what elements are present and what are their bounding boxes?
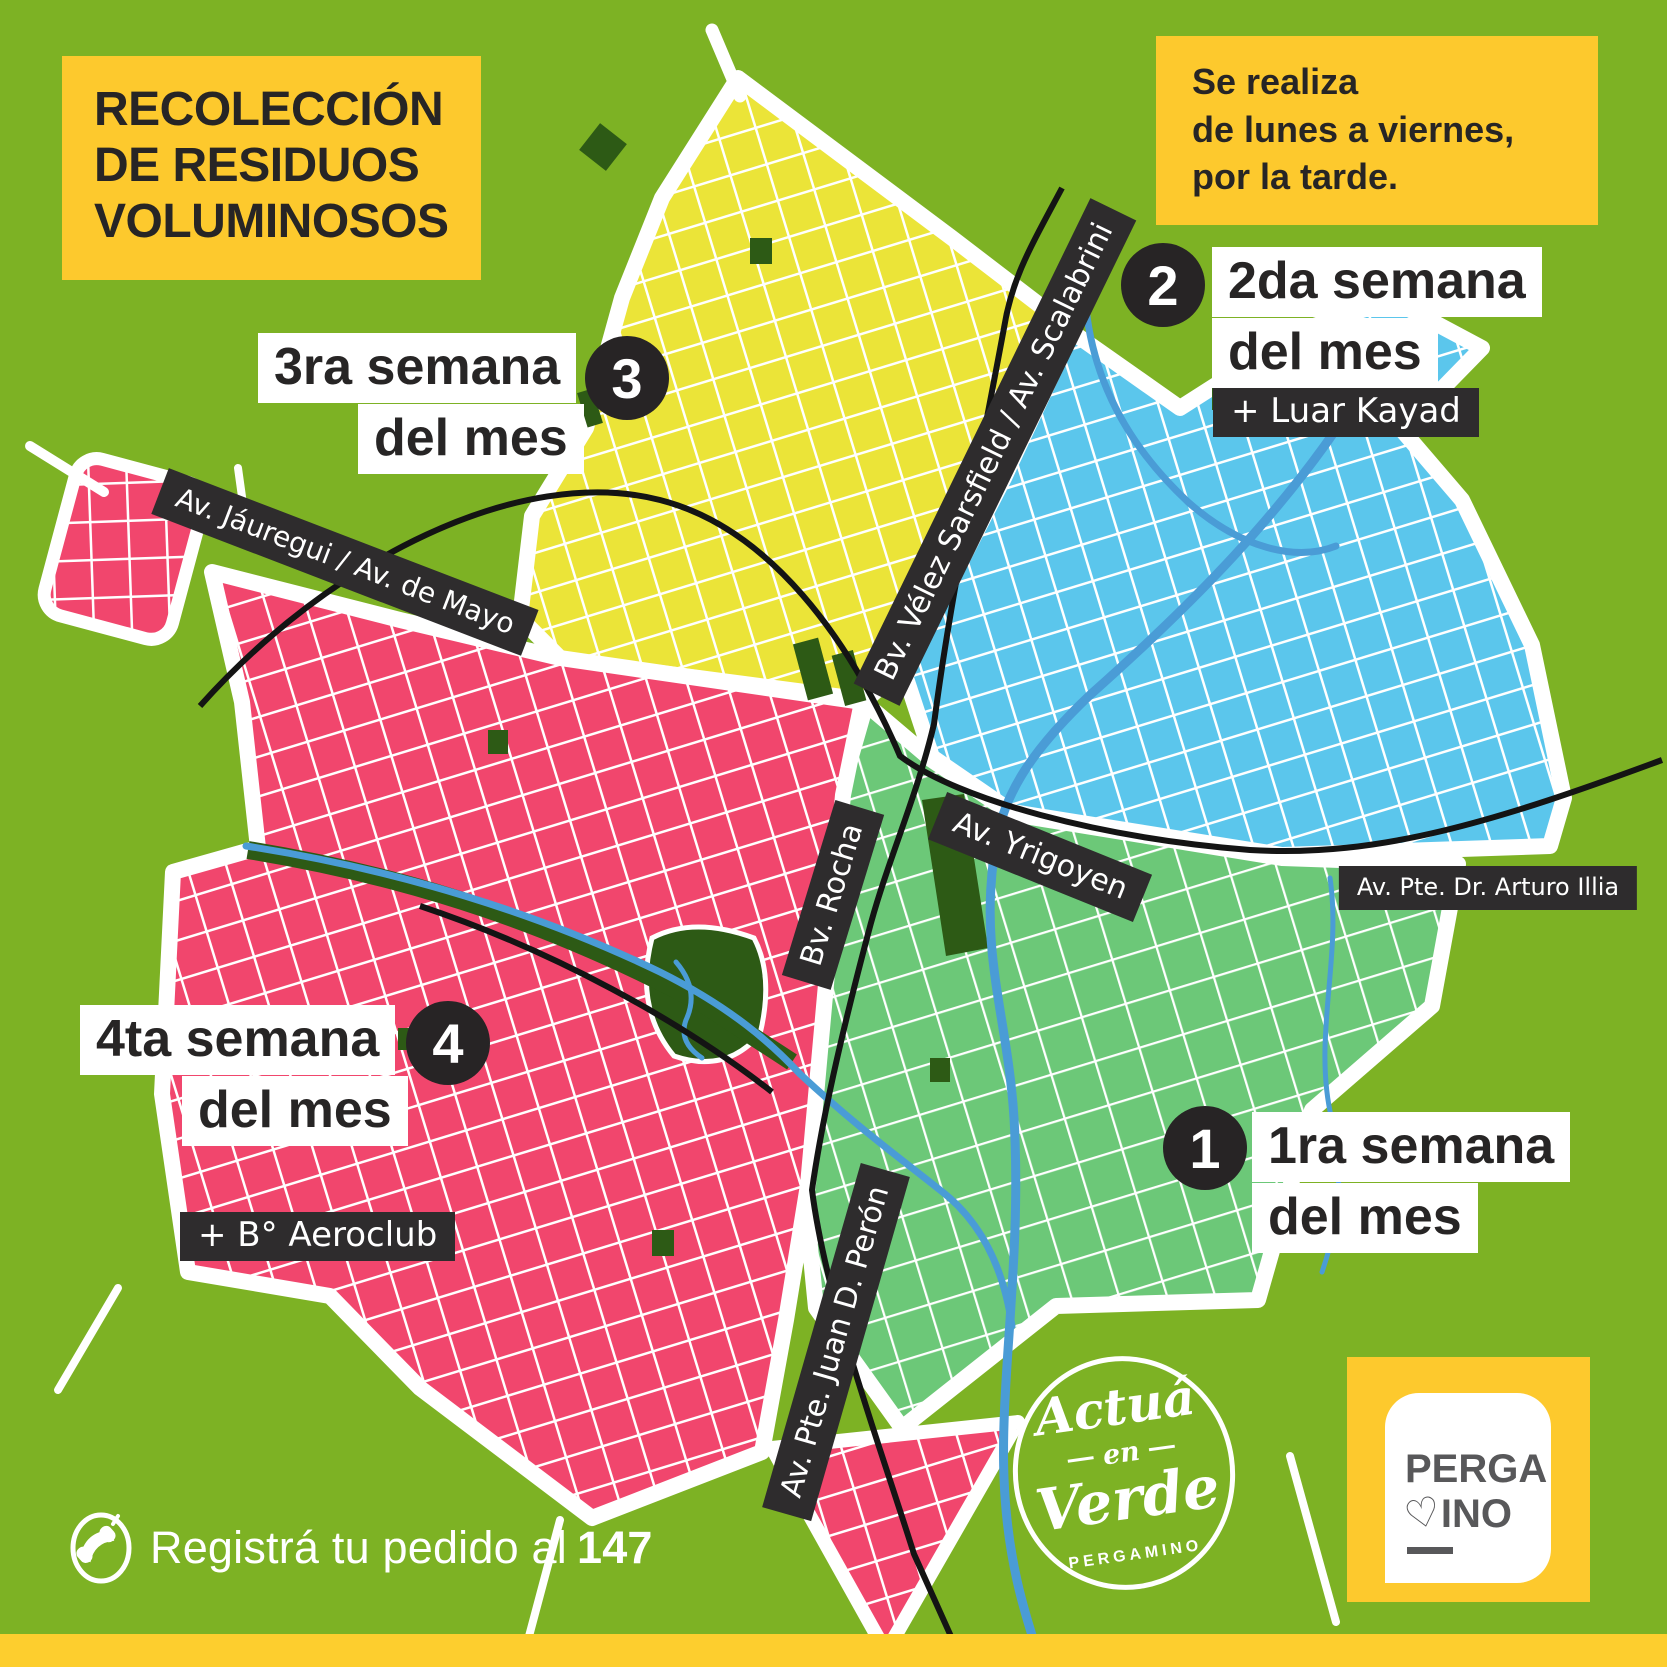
pergamino-logo: PERGA ♡ INO <box>1347 1357 1590 1602</box>
zone1-label-line2: del mes <box>1252 1183 1478 1253</box>
page-title: RECOLECCIÓN DE RESIDUOS VOLUMINOSOS <box>62 56 481 280</box>
heart-icon: ♡ <box>1400 1488 1446 1540</box>
title-line: RECOLECCIÓN <box>94 82 449 138</box>
speech-bubble-icon: PERGA ♡ INO <box>1385 1393 1551 1583</box>
stamp-word-verde: Verde <box>1031 1452 1223 1545</box>
stamp-dash-left <box>1067 1456 1093 1463</box>
zone4-label-line2: del mes <box>182 1076 408 1146</box>
zone4-label-line1: 4ta semana <box>80 1005 395 1075</box>
street-label-illia: Av. Pte. Dr. Arturo Illia <box>1339 866 1637 910</box>
logo-text: PERGA ♡ INO <box>1405 1447 1547 1554</box>
cta-prefix: Registrá tu pedido al <box>150 1522 567 1573</box>
logo-underline <box>1407 1547 1453 1554</box>
zone3-label-line2: del mes <box>358 404 584 474</box>
logo-line2: ♡ INO <box>1405 1492 1547 1537</box>
title-line: VOLUMINOSOS <box>94 194 449 250</box>
stamp-dash-right <box>1149 1445 1175 1452</box>
cta-text: Registrá tu pedido al147 <box>150 1522 653 1574</box>
bottom-accent-strip <box>0 1634 1667 1667</box>
schedule-line: de lunes a viernes, <box>1192 106 1562 154</box>
zone1-label-line1: 1ra semana <box>1252 1112 1570 1182</box>
logo-line2-rest: INO <box>1441 1492 1512 1537</box>
zone4-extra-label: + B° Aeroclub <box>180 1212 455 1261</box>
schedule-line: por la tarde. <box>1192 153 1562 201</box>
zone4-badge: 4 <box>406 1001 490 1085</box>
title-line: DE RESIDUOS <box>94 138 449 194</box>
zone1-badge: 1 <box>1163 1106 1247 1190</box>
map-infographic-canvas: RECOLECCIÓN DE RESIDUOS VOLUMINOSOS Se r… <box>0 0 1667 1667</box>
register-cta: Registrá tu pedido al147 <box>68 1510 653 1586</box>
phone-icon <box>68 1510 134 1586</box>
schedule-note: Se realiza de lunes a viernes, por la ta… <box>1156 36 1598 225</box>
cta-number: 147 <box>577 1522 653 1573</box>
zone3-badge: 3 <box>585 336 669 420</box>
zone2-label-line1: 2da semana <box>1212 247 1542 317</box>
logo-line1: PERGA <box>1405 1447 1547 1492</box>
zone3-label-line1: 3ra semana <box>258 333 576 403</box>
zone2-label-line2: del mes <box>1212 318 1438 388</box>
zone2-badge: 2 <box>1121 243 1205 327</box>
zone2-extra-label: + Luar Kayad <box>1213 388 1479 437</box>
schedule-line: Se realiza <box>1192 58 1562 106</box>
stamp-word-pergamino: PERGAMINO <box>1068 1537 1204 1574</box>
